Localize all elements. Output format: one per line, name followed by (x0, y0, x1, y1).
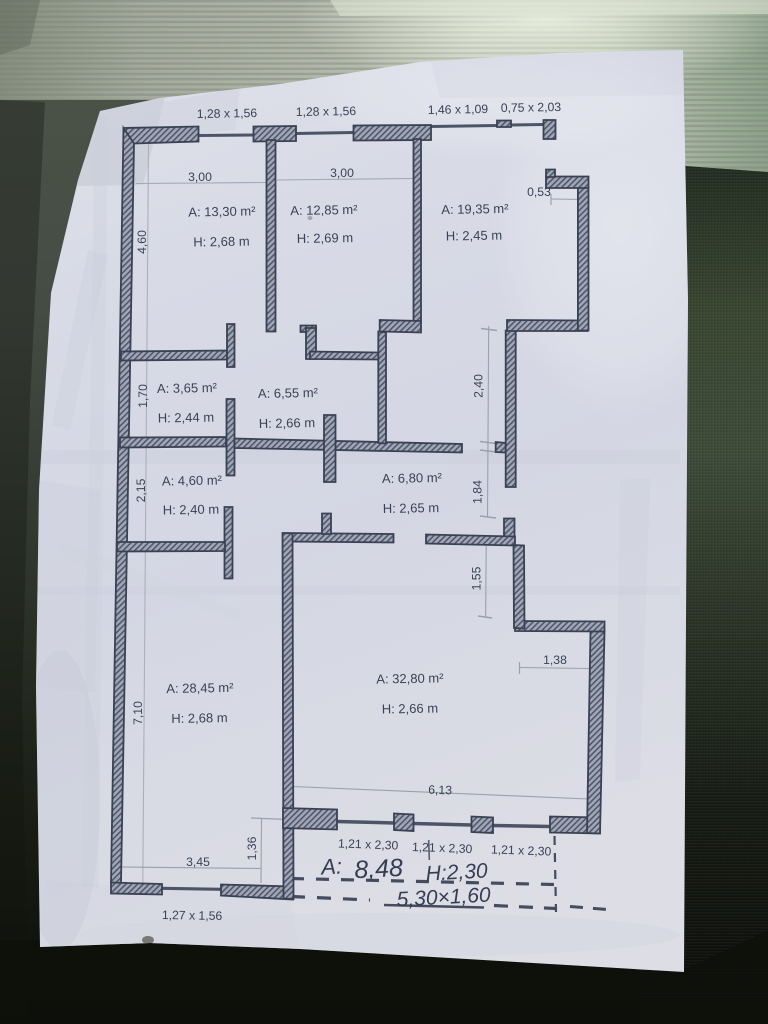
svg-text:H: 2,66 m: H: 2,66 m (382, 701, 439, 717)
svg-text:1,38: 1,38 (543, 653, 567, 667)
svg-text:H: 2,68 m: H: 2,68 m (171, 710, 228, 726)
svg-text:8,48: 8,48 (354, 854, 404, 885)
svg-text:1,21 x 2,30: 1,21 x 2,30 (412, 840, 473, 856)
svg-text:A: 28,45 m²: A: 28,45 m² (166, 680, 234, 696)
svg-text:A: 6,55 m²: A: 6,55 m² (258, 385, 319, 401)
svg-text:1,84: 1,84 (471, 480, 485, 504)
svg-text:H:2,30: H:2,30 (425, 859, 488, 885)
svg-text:3,00: 3,00 (330, 166, 354, 180)
svg-text:A: 19,35 m²: A: 19,35 m² (441, 201, 509, 217)
svg-text:7,10: 7,10 (131, 701, 145, 725)
svg-text:1,27 x 1,56: 1,27 x 1,56 (162, 908, 223, 923)
svg-text:A: 32,80 m²: A: 32,80 m² (376, 670, 444, 686)
svg-text:2,15: 2,15 (134, 478, 148, 502)
svg-text:A: 13,30 m²: A: 13,30 m² (188, 203, 256, 219)
svg-text:3,00: 3,00 (188, 170, 212, 184)
svg-text:1,55: 1,55 (470, 566, 484, 590)
svg-text:1,28 x 1,56: 1,28 x 1,56 (296, 104, 357, 119)
svg-text:H: 2,65 m: H: 2,65 m (383, 500, 440, 516)
svg-text:1,28 x 1,56: 1,28 x 1,56 (197, 106, 258, 121)
svg-text:1,21 x 2,30: 1,21 x 2,30 (338, 836, 399, 852)
svg-text:1,21 x 2,30: 1,21 x 2,30 (491, 842, 552, 858)
svg-text:H: 2,45 m: H: 2,45 m (446, 228, 503, 244)
svg-text:0,75 x 2,03: 0,75 x 2,03 (501, 100, 562, 115)
svg-text:H: 2,69 m: H: 2,69 m (297, 230, 354, 246)
svg-text:A:: A: (319, 853, 343, 879)
svg-text:H: 2,68 m: H: 2,68 m (193, 234, 250, 250)
svg-text:3,45: 3,45 (186, 855, 210, 869)
svg-text:H: 2,40 m: H: 2,40 m (163, 502, 220, 518)
svg-text:1,46 x 1,09: 1,46 x 1,09 (428, 102, 489, 117)
svg-text:4,60: 4,60 (135, 230, 149, 254)
svg-text:1,70: 1,70 (136, 384, 150, 408)
svg-text:0,53: 0,53 (527, 185, 551, 199)
svg-text:6,13: 6,13 (428, 783, 452, 798)
svg-text:H: 2,44 m: H: 2,44 m (158, 410, 215, 426)
svg-text:2,40: 2,40 (472, 374, 486, 398)
svg-text:A: 12,85 m²: A: 12,85 m² (290, 202, 358, 218)
svg-text:H: 2,66 m: H: 2,66 m (259, 415, 316, 431)
svg-text:A: 3,65 m²: A: 3,65 m² (157, 380, 218, 396)
svg-text:1,36: 1,36 (245, 836, 259, 860)
svg-text:A: 4,60 m²: A: 4,60 m² (162, 472, 223, 488)
svg-text:A: 6,80 m²: A: 6,80 m² (382, 470, 443, 486)
